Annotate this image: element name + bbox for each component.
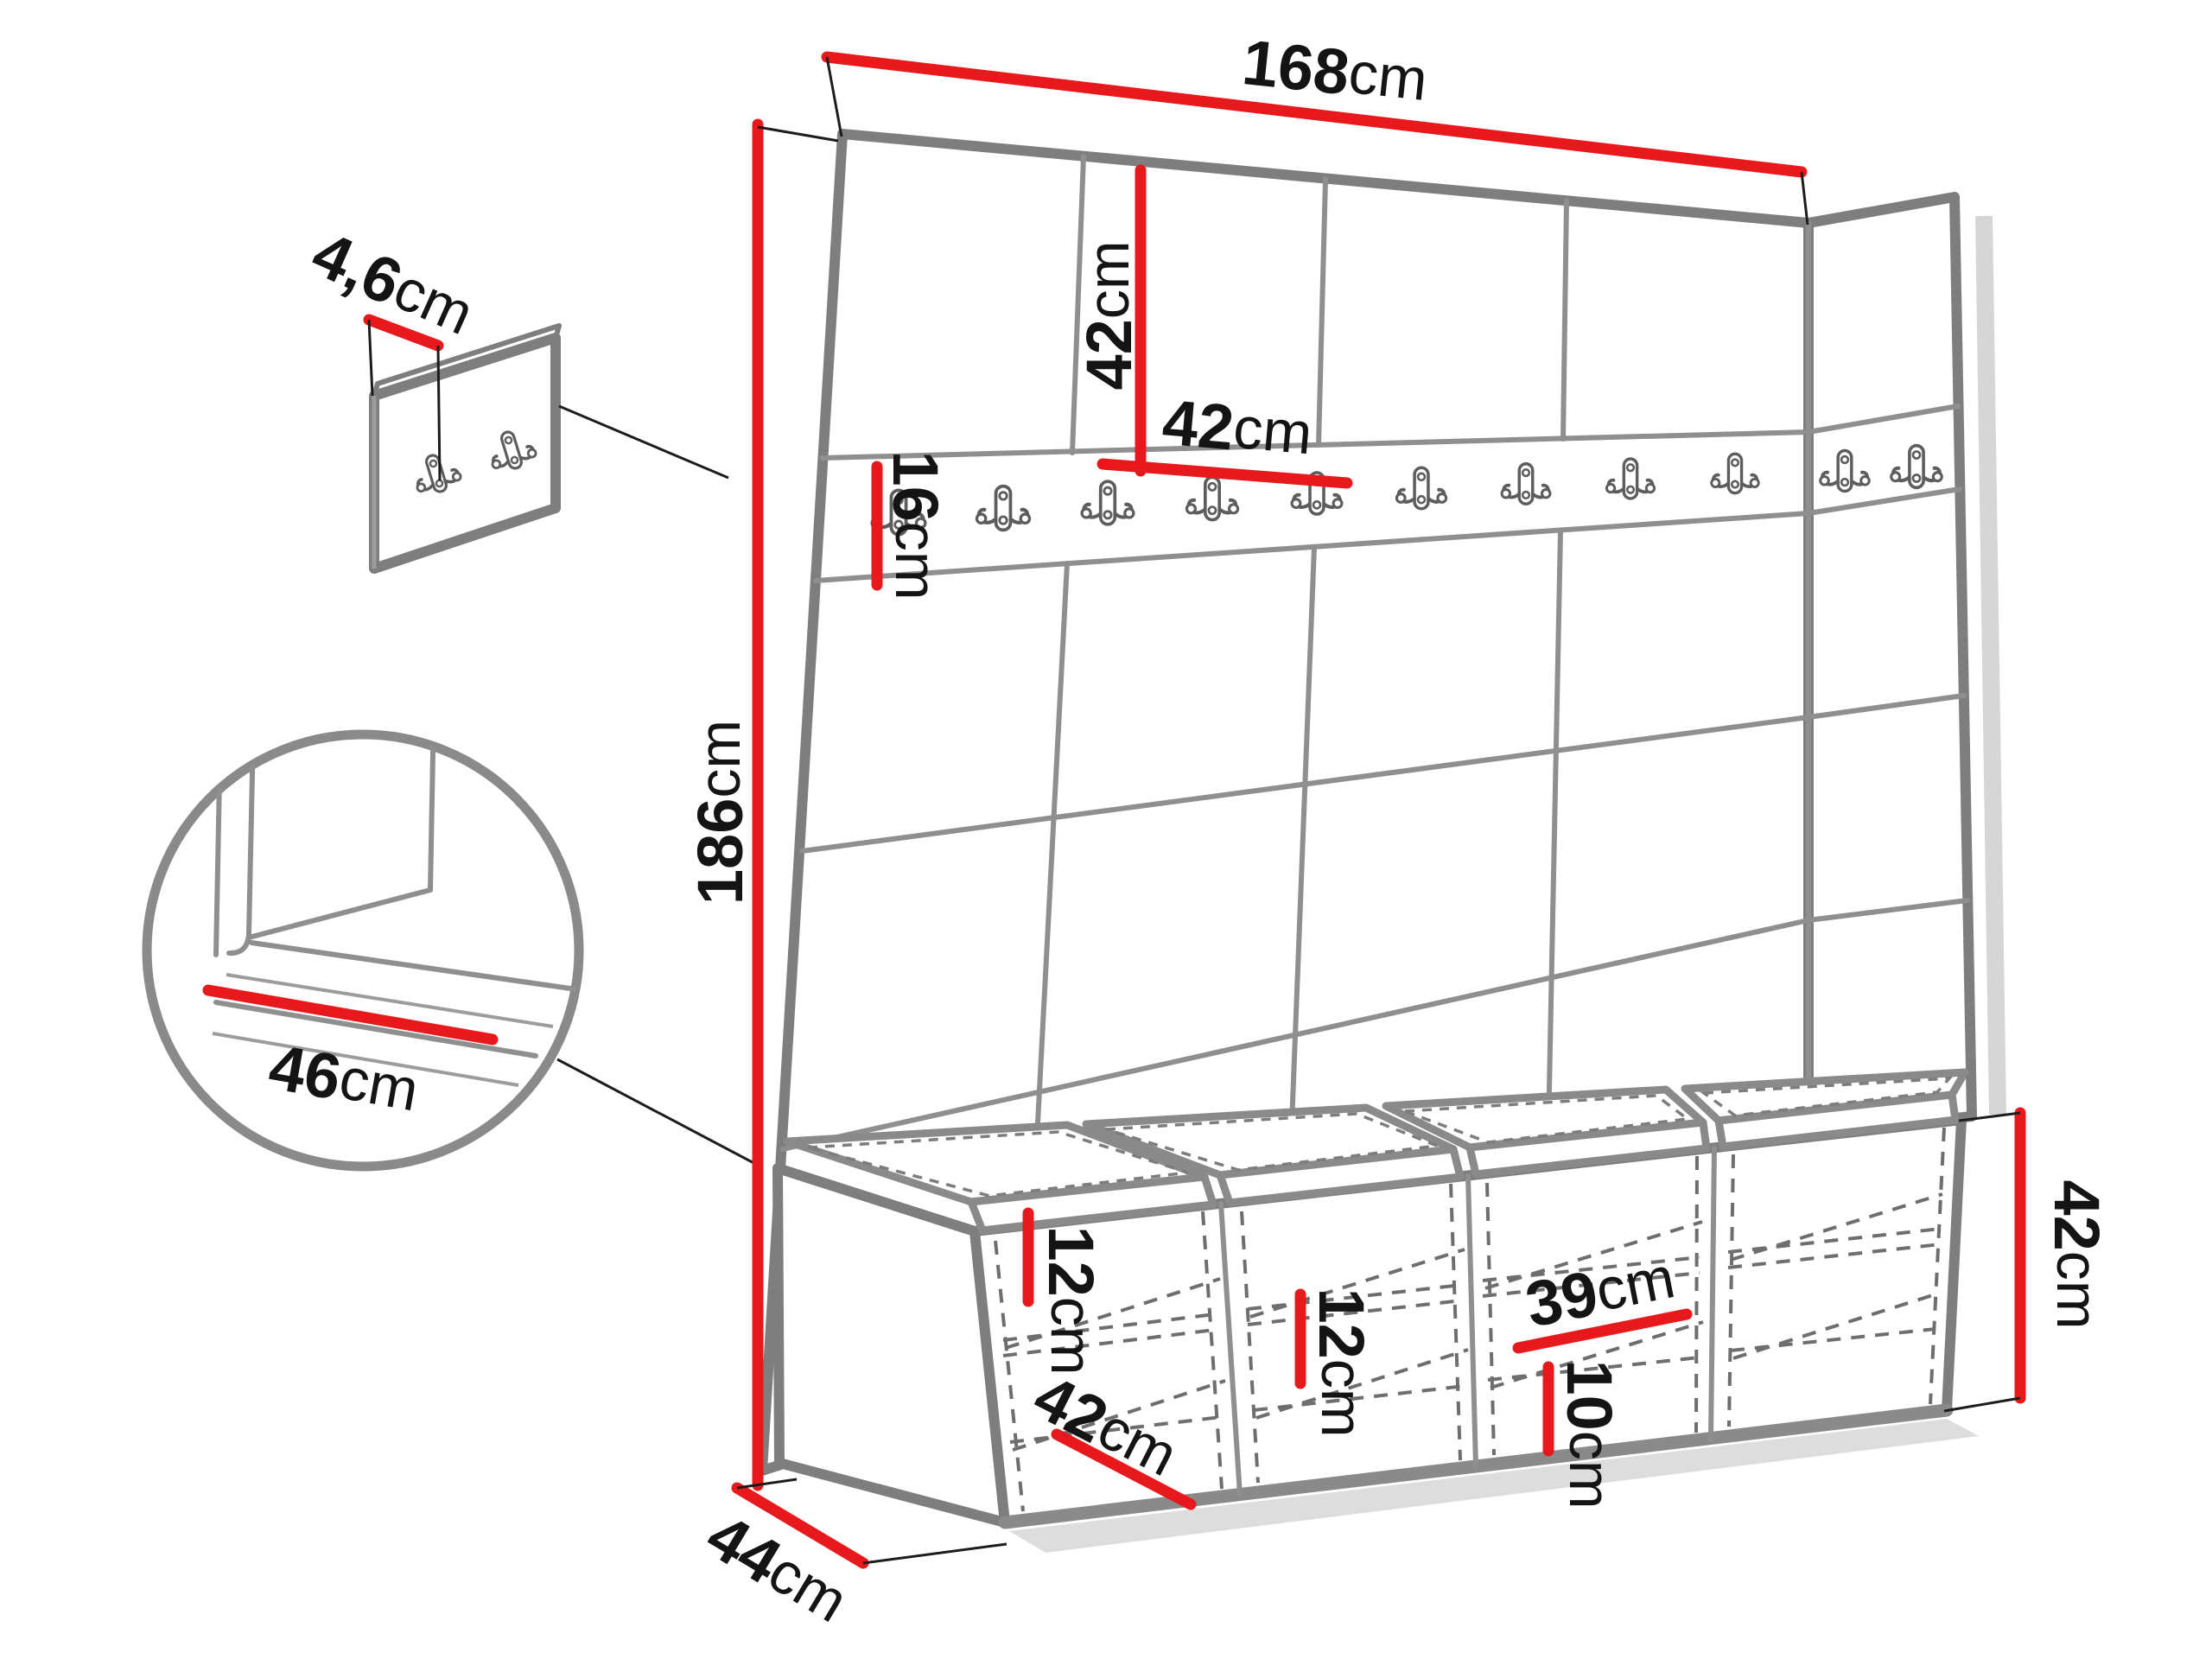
hook-panel-leader-line bbox=[559, 406, 728, 478]
diagram-canvas: 168cm 42cm 42cm 16cm 186cm 4,6cm 46cm 12… bbox=[0, 0, 2212, 1659]
label-value: 168 bbox=[1239, 26, 1352, 108]
corner-zoom-detail bbox=[147, 709, 760, 1166]
label-cab3-bottom-gap: 10cm bbox=[1554, 1359, 1626, 1509]
label-cab2-shelf-gap: 12cm bbox=[1306, 1287, 1378, 1437]
label-total-height: 186cm bbox=[684, 720, 756, 905]
furniture-dimension-diagram: 168cm 42cm 42cm 16cm 186cm 4,6cm 46cm 12… bbox=[0, 0, 2212, 1659]
hook-panel-detail bbox=[374, 326, 728, 569]
label-total-width: 168cm bbox=[1239, 26, 1431, 117]
label-cab1-shelf-gap: 12cm bbox=[1036, 1225, 1108, 1375]
label-bench-depth: 44cm bbox=[695, 1499, 860, 1637]
label-top-panel-height: 42cm bbox=[1073, 240, 1145, 390]
label-rail-height: 16cm bbox=[880, 450, 952, 600]
side-panel-shadow bbox=[1984, 216, 1998, 1115]
wall-angled-side-panel bbox=[1808, 197, 1972, 1134]
label-unit: cm bbox=[1345, 40, 1430, 113]
detail-leader-line bbox=[557, 1059, 760, 1166]
label-bench-height: 42cm bbox=[2042, 1179, 2113, 1329]
